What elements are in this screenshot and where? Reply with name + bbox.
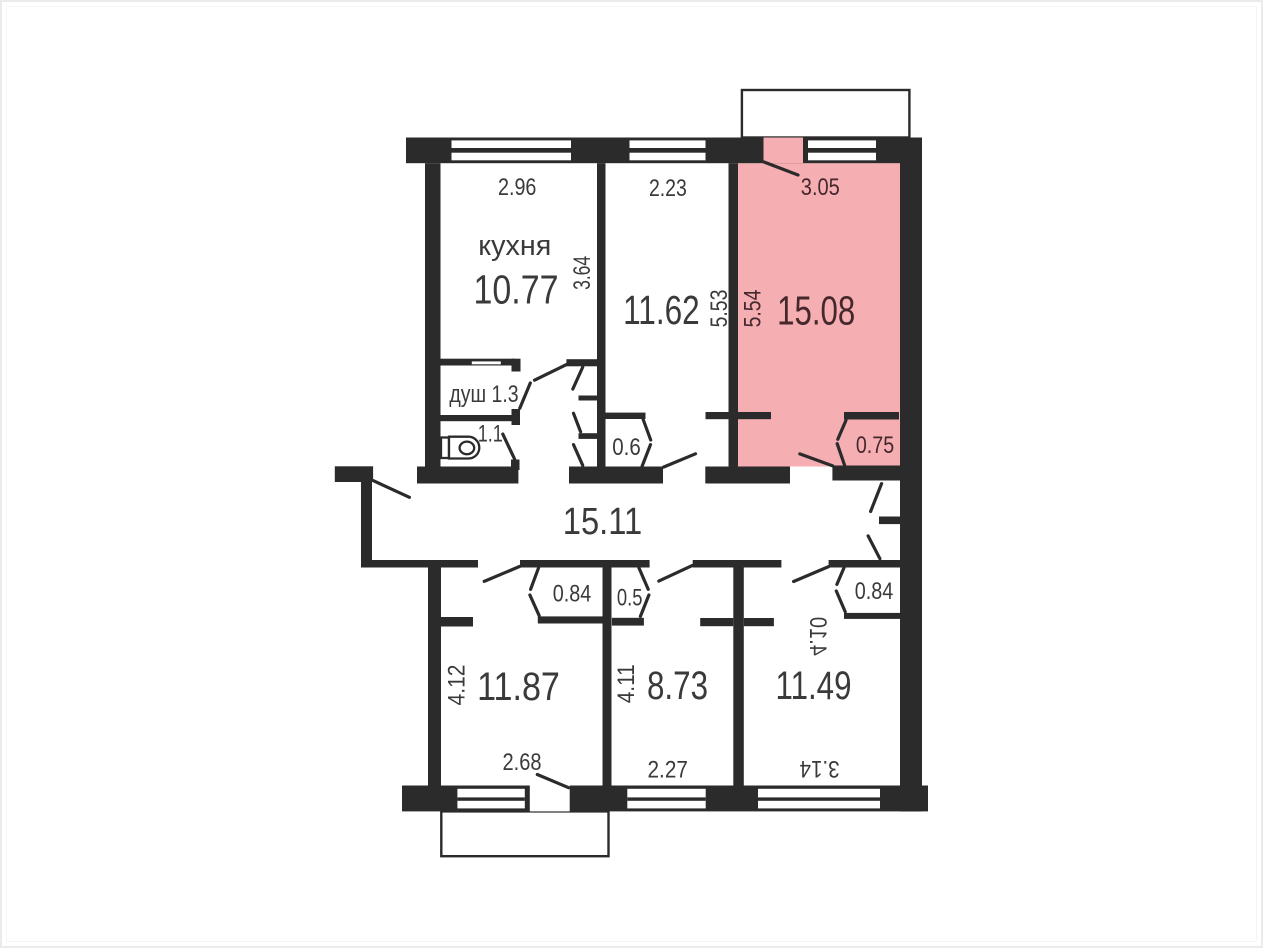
svg-text:10.77: 10.77: [474, 267, 559, 313]
svg-text:0.84: 0.84: [855, 578, 894, 605]
svg-text:1.1: 1.1: [478, 421, 503, 448]
svg-text:11.49: 11.49: [776, 664, 852, 708]
svg-text:5.53: 5.53: [706, 290, 733, 328]
svg-text:11.62: 11.62: [623, 287, 700, 333]
svg-text:15.08: 15.08: [777, 288, 855, 334]
svg-text:4.10: 4.10: [804, 617, 831, 656]
svg-text:2.27: 2.27: [648, 756, 688, 783]
svg-text:11.87: 11.87: [477, 665, 560, 709]
svg-text:15.11: 15.11: [563, 501, 642, 543]
svg-text:4.12: 4.12: [444, 665, 471, 706]
svg-text:душ 1.3: душ 1.3: [449, 381, 518, 408]
svg-text:кухня: кухня: [478, 230, 551, 262]
svg-text:0.75: 0.75: [856, 432, 894, 459]
svg-text:3.14: 3.14: [800, 755, 840, 782]
svg-text:4.11: 4.11: [613, 664, 640, 703]
svg-text:2.96: 2.96: [498, 174, 536, 201]
svg-text:2.23: 2.23: [649, 175, 687, 202]
svg-text:0.6: 0.6: [612, 434, 641, 461]
svg-text:3.05: 3.05: [801, 174, 840, 201]
svg-text:2.68: 2.68: [503, 749, 542, 776]
svg-text:8.73: 8.73: [647, 664, 708, 708]
svg-text:0.84: 0.84: [553, 580, 592, 607]
svg-text:5.54: 5.54: [740, 290, 767, 328]
svg-text:0.5: 0.5: [617, 584, 643, 611]
svg-text:3.64: 3.64: [569, 256, 596, 290]
